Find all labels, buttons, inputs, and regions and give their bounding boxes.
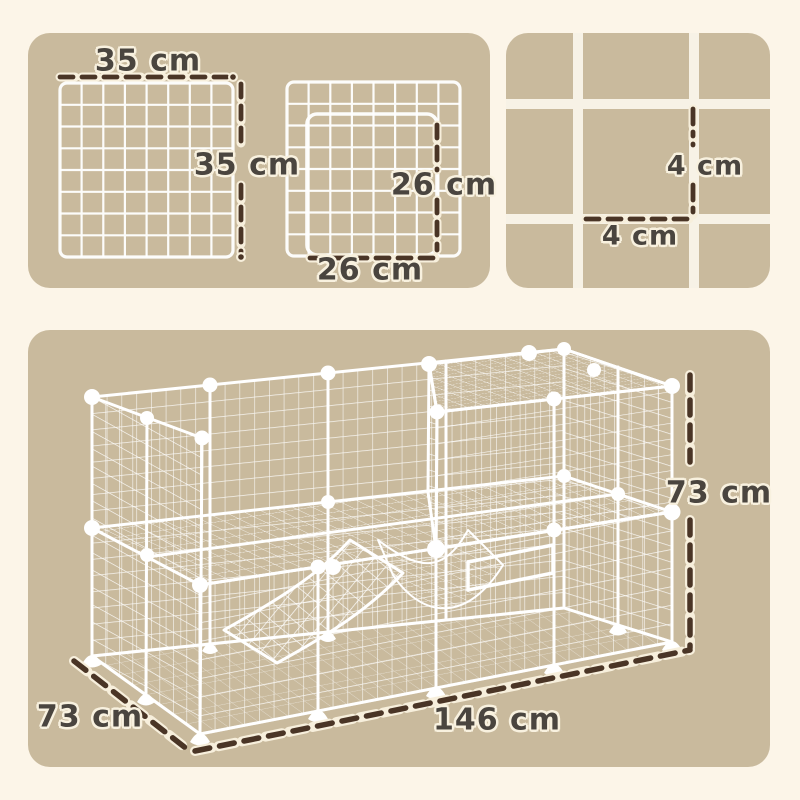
label-mesh-cell-width: 4 cm [602,221,678,252]
label-door-height: 26 cm [391,168,497,203]
label-door-width: 26 cm [317,253,423,288]
label-cage-length: 146 cm [433,703,561,738]
label-cage-height: 73 cm [666,476,772,511]
label-grid-width: 35 cm [95,44,201,79]
panel-mesh-detail: 4 cm 4 cm [506,33,770,288]
panel-cage: 73 cm 146 cm 73 cm [28,330,770,767]
label-cage-depth: 73 cm [37,700,143,735]
label-grid-height: 35 cm [194,148,300,183]
panel-small-grids: 35 cm 35 cm 26 cm 26 cm [28,33,490,288]
label-mesh-cell-height: 4 cm [667,151,743,182]
